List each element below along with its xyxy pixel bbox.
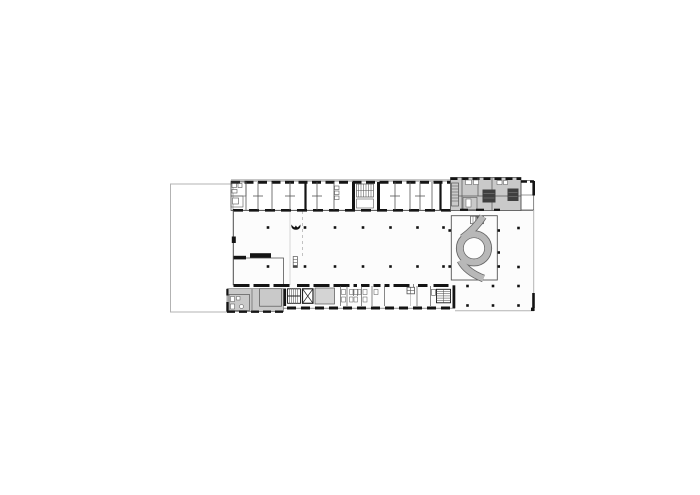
sink-fixture-icon <box>232 190 237 194</box>
column-dot <box>267 265 270 268</box>
elevator-shaft-icon <box>483 190 496 203</box>
column-dot <box>416 265 419 268</box>
wall-segment <box>284 289 287 307</box>
basin-icon <box>240 305 244 309</box>
ladder-icon <box>293 257 297 268</box>
page-canvas <box>0 0 700 495</box>
wc-fixture-icon <box>231 297 235 302</box>
elevator-shaft-icon <box>508 189 519 202</box>
south-wing <box>226 284 455 312</box>
column-dot <box>334 265 337 268</box>
column-dot <box>517 285 520 288</box>
wc-fixture-icon <box>238 184 242 188</box>
column-dot <box>362 226 365 229</box>
column-dot <box>517 266 520 269</box>
wc-fixture-icon <box>232 184 237 188</box>
southwest-gray-annex <box>226 289 286 312</box>
column-dot <box>466 285 469 288</box>
northeast-corner-rooms <box>521 181 535 211</box>
column-dot <box>517 227 520 230</box>
column-dot <box>304 226 307 229</box>
fixture-icon <box>233 198 239 204</box>
column-dot <box>448 265 451 268</box>
column-dot <box>334 226 337 229</box>
column-dot <box>497 229 500 232</box>
column-dot <box>362 265 365 268</box>
adjacent-lot-outline <box>171 184 234 312</box>
wall-segment <box>234 256 247 260</box>
column-dot <box>442 265 445 268</box>
column-dot <box>517 304 520 307</box>
column-dot <box>492 285 495 288</box>
wc-fixture-icon <box>231 304 235 309</box>
column-dot <box>497 251 500 254</box>
north-stair-core <box>352 182 380 210</box>
service-wall-segments <box>460 209 500 211</box>
corner-wall-segment <box>531 308 535 311</box>
column-dot <box>389 226 392 229</box>
east-wall-segment <box>532 293 535 308</box>
gray-room <box>315 288 335 304</box>
east-wall-segment <box>532 181 535 196</box>
band-end-wall <box>453 285 456 308</box>
column-dot <box>389 265 392 268</box>
column-dot <box>442 226 445 229</box>
floor-plan-figure <box>0 0 700 495</box>
elevator-x-icon <box>303 289 314 304</box>
bearing-wall <box>304 182 306 210</box>
bearing-wall <box>439 182 441 210</box>
column-dot <box>304 265 307 268</box>
column-dot <box>267 226 270 229</box>
fixture-icon <box>466 199 471 207</box>
northeast-service-block <box>451 178 522 211</box>
column-dot <box>448 229 451 232</box>
column-dot <box>416 226 419 229</box>
column-dot <box>466 304 469 307</box>
wall-pier <box>232 237 236 244</box>
column-dot <box>497 265 500 268</box>
shelving-icon <box>335 186 340 200</box>
column-dot <box>492 304 495 307</box>
sink-fixture-icon <box>237 297 241 301</box>
wall-segment <box>250 253 271 258</box>
